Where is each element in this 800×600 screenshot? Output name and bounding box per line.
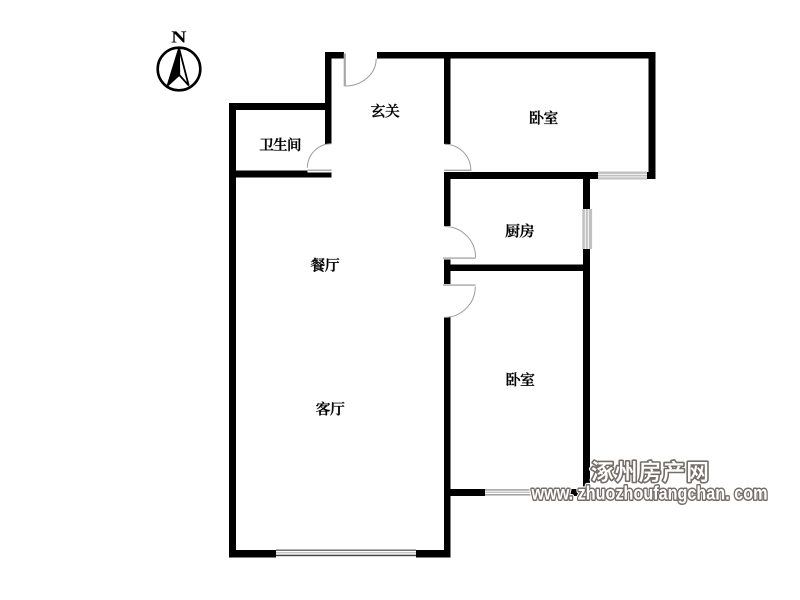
svg-text:www. zhuozhoufangchan. com: www. zhuozhoufangchan. com — [531, 483, 768, 505]
